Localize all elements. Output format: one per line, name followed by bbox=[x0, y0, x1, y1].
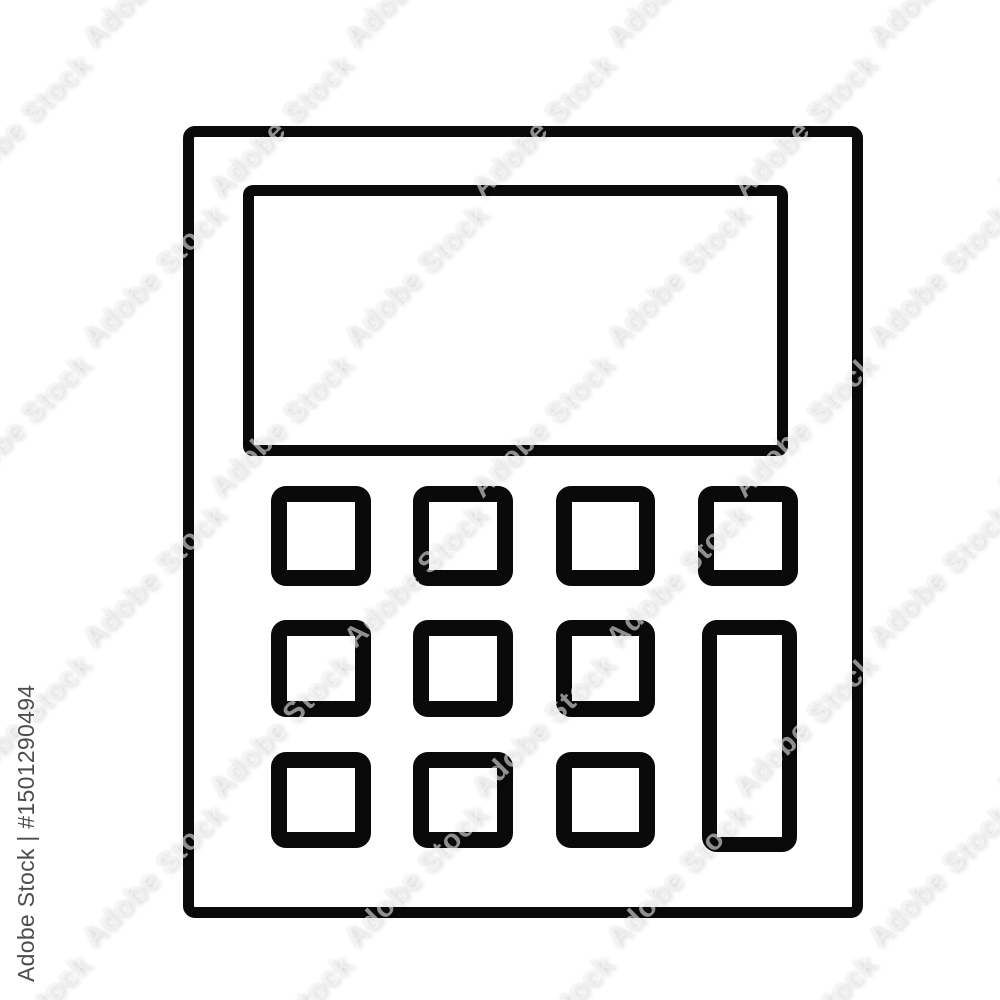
calculator-button-r2c1 bbox=[271, 620, 371, 717]
watermark-tile: Adobe Stock bbox=[203, 948, 359, 1000]
calculator-button-r1c4 bbox=[698, 486, 798, 586]
watermark-tile: Adobe Stock bbox=[0, 48, 97, 204]
watermark-tile: Adobe Stock bbox=[465, 948, 621, 1000]
watermark-tile: Adobe Stock bbox=[989, 348, 1000, 504]
watermark-tile: Adobe Stock bbox=[76, 0, 232, 55]
watermark-tile: Adobe Stock bbox=[862, 0, 1000, 55]
calculator-icon bbox=[183, 126, 863, 918]
calculator-button-r3c3 bbox=[556, 752, 655, 848]
watermark-tile: Adobe Stock bbox=[338, 0, 494, 55]
watermark-tile: Adobe Stock bbox=[989, 48, 1000, 204]
calculator-button-r3c1 bbox=[271, 752, 371, 848]
calculator-button-r1c1 bbox=[271, 486, 371, 586]
watermark-tile: Adobe Stock bbox=[989, 648, 1000, 804]
calculator-button-r1c2 bbox=[413, 486, 513, 586]
calculator-display bbox=[243, 185, 788, 456]
calculator-button-r1c3 bbox=[556, 486, 655, 586]
calculator-button-r2c2 bbox=[413, 620, 513, 717]
watermark-tile: Adobe Stock bbox=[0, 348, 97, 504]
watermark-tile: Adobe Stock bbox=[600, 0, 756, 55]
calculator-button-r3c2 bbox=[413, 752, 513, 848]
watermark-tile: Adobe Stock bbox=[989, 948, 1000, 1000]
calculator-button-r2c3 bbox=[556, 620, 655, 717]
stock-image-canvas: Adobe StockAdobe StockAdobe StockAdobe S… bbox=[0, 0, 1000, 1000]
watermark-tile: Adobe Stock bbox=[862, 798, 1000, 954]
watermark-tile: Adobe Stock bbox=[862, 198, 1000, 354]
stock-id-watermark: Adobe Stock | #1501290494 bbox=[13, 685, 40, 982]
watermark-tile: Adobe Stock bbox=[727, 948, 883, 1000]
watermark-tile: Adobe Stock bbox=[862, 498, 1000, 654]
calculator-button-tall-enter bbox=[702, 620, 797, 852]
